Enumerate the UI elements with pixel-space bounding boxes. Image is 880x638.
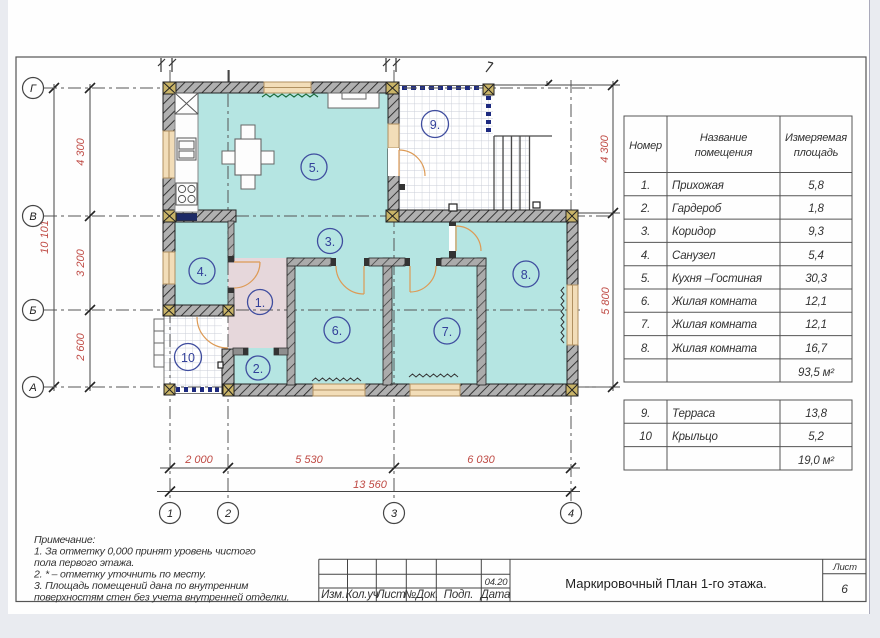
svg-text:6 030: 6 030 xyxy=(467,454,495,466)
svg-text:2. * – отметку уточнить по мес: 2. * – отметку уточнить по месту. xyxy=(33,569,206,581)
svg-text:Прихожая: Прихожая xyxy=(672,180,724,192)
svg-text:Лист: Лист xyxy=(376,589,406,601)
svg-text:10: 10 xyxy=(639,431,652,443)
svg-text:8.: 8. xyxy=(521,268,531,282)
svg-text:Гардероб: Гардероб xyxy=(672,203,722,215)
svg-text:04.20: 04.20 xyxy=(485,577,509,588)
svg-text:Г: Г xyxy=(30,83,37,95)
svg-text:помещения: помещения xyxy=(695,147,753,159)
svg-text:Жилая комната: Жилая комната xyxy=(671,296,757,308)
svg-text:2.: 2. xyxy=(253,362,263,376)
svg-text:13 560: 13 560 xyxy=(353,479,388,491)
svg-text:3.: 3. xyxy=(325,235,335,249)
svg-text:Жилая комната: Жилая комната xyxy=(671,343,757,355)
svg-text:Б: Б xyxy=(29,305,36,317)
svg-text:1. За отметку 0,000 принят уро: 1. За отметку 0,000 принят уровень чисто… xyxy=(34,546,256,558)
svg-text:8.: 8. xyxy=(641,343,650,355)
svg-text:30,3: 30,3 xyxy=(805,273,827,285)
svg-text:6.: 6. xyxy=(332,324,342,338)
svg-text:2.: 2. xyxy=(640,203,650,215)
svg-text:Коридор: Коридор xyxy=(672,226,717,238)
svg-text:Крыльцо: Крыльцо xyxy=(672,431,719,443)
svg-text:10 101: 10 101 xyxy=(39,220,51,254)
svg-text:9.: 9. xyxy=(641,408,650,420)
svg-text:В: В xyxy=(29,211,36,223)
svg-text:2 000: 2 000 xyxy=(184,454,213,466)
svg-text:3. Площадь помещений дана по в: 3. Площадь помещений дана по внутренним xyxy=(34,580,248,592)
svg-text:12,1: 12,1 xyxy=(805,296,827,308)
svg-text:13,8: 13,8 xyxy=(805,408,827,420)
svg-text:4 300: 4 300 xyxy=(75,137,87,165)
svg-text:5,8: 5,8 xyxy=(808,180,824,192)
svg-text:Терраса: Терраса xyxy=(672,408,715,420)
svg-text:4: 4 xyxy=(568,508,574,520)
svg-text:А: А xyxy=(28,382,36,394)
svg-text:9.: 9. xyxy=(430,118,440,132)
svg-text:4 300: 4 300 xyxy=(599,134,611,162)
svg-text:Лист: Лист xyxy=(832,562,857,573)
svg-text:7.: 7. xyxy=(442,325,452,339)
svg-text:7.: 7. xyxy=(641,319,650,331)
svg-text:Название: Название xyxy=(700,132,747,144)
svg-text:5 800: 5 800 xyxy=(600,286,612,314)
svg-text:Жилая комната: Жилая комната xyxy=(671,319,757,331)
svg-text:16,7: 16,7 xyxy=(805,343,827,355)
svg-text:5.: 5. xyxy=(641,273,650,285)
svg-text:1,8: 1,8 xyxy=(808,203,824,215)
svg-text:10: 10 xyxy=(181,351,195,365)
svg-text:Санузел: Санузел xyxy=(672,250,716,262)
svg-text:Измеряемая: Измеряемая xyxy=(785,132,847,144)
svg-text:2: 2 xyxy=(224,508,231,520)
svg-text:4.: 4. xyxy=(641,250,650,262)
svg-text:1.: 1. xyxy=(641,180,650,192)
svg-text:Кол.уч: Кол.уч xyxy=(345,589,378,601)
svg-text:3 200: 3 200 xyxy=(75,248,87,276)
svg-text:4.: 4. xyxy=(197,265,207,279)
svg-text:Маркировочный План 1-го этажа.: Маркировочный План 1-го этажа. xyxy=(565,576,766,591)
svg-text:6.: 6. xyxy=(641,296,650,308)
svg-text:5 530: 5 530 xyxy=(295,454,323,466)
svg-text:Дата: Дата xyxy=(479,589,511,601)
svg-text:93,5 м²: 93,5 м² xyxy=(798,367,835,379)
svg-text:3.: 3. xyxy=(641,226,650,238)
svg-text:Подп.: Подп. xyxy=(444,589,474,601)
svg-text:Номер: Номер xyxy=(629,140,662,152)
svg-text:12,1: 12,1 xyxy=(805,319,827,331)
svg-text:Изм.: Изм. xyxy=(321,589,345,601)
svg-text:3: 3 xyxy=(391,508,398,520)
svg-text:9,3: 9,3 xyxy=(808,226,824,238)
svg-text:Примечание:: Примечание: xyxy=(34,534,95,546)
svg-text:5,4: 5,4 xyxy=(808,250,823,262)
svg-text:5.: 5. xyxy=(309,161,319,175)
svg-text:1: 1 xyxy=(167,508,173,520)
svg-text:6: 6 xyxy=(841,582,848,596)
svg-text:поверхностям стен без учета вн: поверхностям стен без учета внутренней о… xyxy=(34,592,289,604)
svg-text:площадь: площадь xyxy=(794,147,839,159)
svg-text:1.: 1. xyxy=(255,296,265,310)
svg-text:пола первого этажа.: пола первого этажа. xyxy=(34,557,134,569)
svg-text:5,2: 5,2 xyxy=(808,431,824,443)
svg-text:19,0 м²: 19,0 м² xyxy=(798,455,835,467)
svg-text:2 600: 2 600 xyxy=(75,332,87,361)
svg-text:№Док.: №Док. xyxy=(404,589,439,601)
svg-text:Кухня –Гостиная: Кухня –Гостиная xyxy=(672,273,762,285)
